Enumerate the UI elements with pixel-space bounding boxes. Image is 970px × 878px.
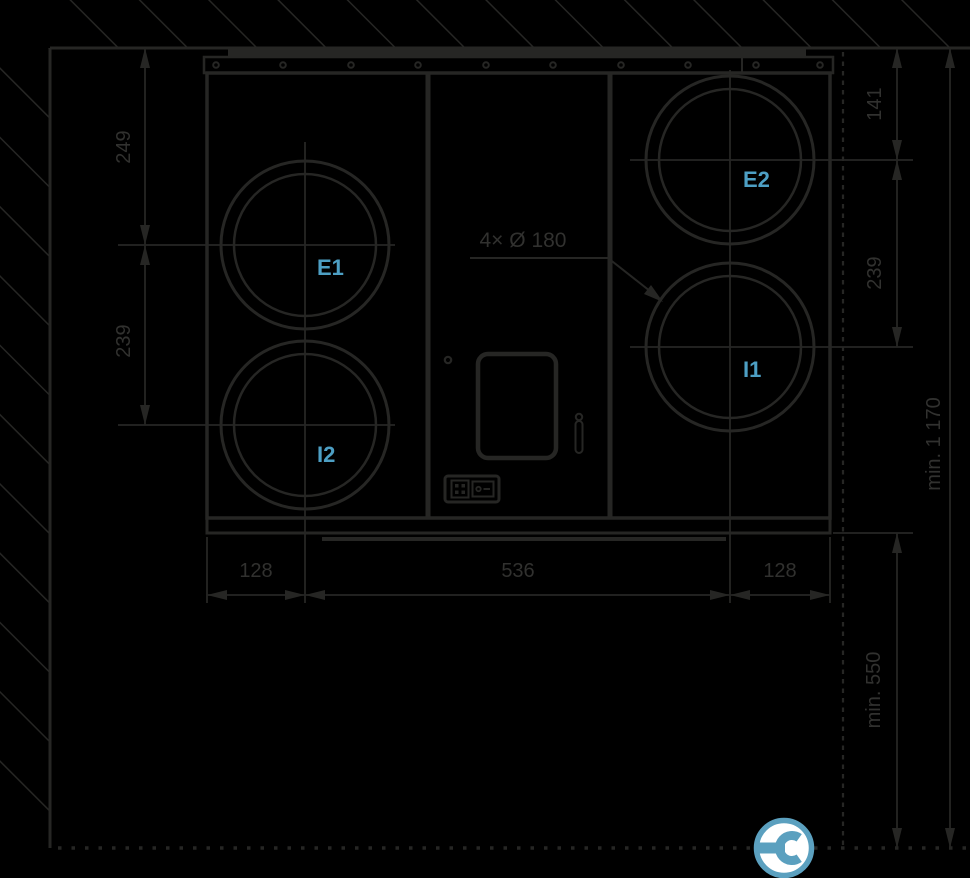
flange-screws [213, 62, 823, 68]
bottom-flange [207, 518, 830, 533]
flange-screw [753, 62, 759, 68]
flange-screw [550, 62, 556, 68]
installation-drawing: E1 I2 E2 I1 4× Ø 180 249 239 [0, 0, 970, 878]
dim-label-536: 536 [501, 560, 534, 582]
ventilation-unit [204, 49, 833, 539]
flange-screw [213, 62, 219, 68]
dim-arrow [710, 590, 730, 600]
flange-screw [817, 62, 823, 68]
dim-arrow [305, 590, 325, 600]
dim-arrow [892, 160, 902, 180]
terminal-pin [455, 484, 459, 488]
dim-label-249: 249 [113, 130, 135, 163]
connection-panel [445, 476, 499, 502]
terminal-pin [462, 484, 466, 488]
port-e1-label: E1 [317, 255, 344, 280]
dim-label-141: 141 [864, 87, 886, 120]
flange-screw [348, 62, 354, 68]
dim-arrow [140, 245, 150, 265]
control-door [478, 354, 556, 458]
dim-arrow [892, 828, 902, 848]
terminal-block [452, 481, 469, 498]
dim-arrow [892, 48, 902, 68]
dim-arrow [892, 327, 902, 347]
ports: E1 I2 E2 I1 [118, 70, 913, 603]
dim-label-128-right: 128 [763, 560, 796, 582]
dim-label-min550: min. 550 [863, 652, 885, 729]
dim-label-239-right: 239 [864, 256, 886, 289]
dim-arrow [892, 140, 902, 160]
door-handle-slot [576, 421, 583, 453]
flange-screw [483, 62, 489, 68]
dim-label-128-left: 128 [239, 560, 272, 582]
dim-arrow [140, 225, 150, 245]
ceiling-hatch [50, 0, 970, 48]
dim-arrow [892, 533, 902, 553]
dim-label-min1170: min. 1 170 [923, 397, 945, 490]
flange-screw [685, 62, 691, 68]
door-handle-pin [576, 414, 582, 420]
duct-size-callout: 4× Ø 180 [470, 229, 663, 302]
dim-arrow [945, 48, 955, 68]
dimension-left-column: 249 239 [113, 48, 150, 425]
dim-arrow [810, 590, 830, 600]
flange-screw [415, 62, 421, 68]
flange-screw [280, 62, 286, 68]
top-flange [204, 57, 833, 73]
door-section [445, 354, 583, 502]
port-e2-label: E2 [743, 167, 770, 192]
unit-body [207, 73, 830, 518]
switch-dot [476, 487, 480, 491]
dim-arrow [945, 828, 955, 848]
flange-screw [618, 62, 624, 68]
duct-size-text: 4× Ø 180 [480, 229, 567, 252]
wall-hatch [0, 48, 50, 820]
dim-arrow [285, 590, 305, 600]
dim-arrow [140, 48, 150, 68]
terminal-pin [455, 491, 459, 495]
dim-arrow [730, 590, 750, 600]
terminal-pin [462, 491, 466, 495]
dim-arrow [207, 590, 227, 600]
door-screw [445, 357, 451, 363]
dim-arrow [140, 405, 150, 425]
port-i1-label: I1 [743, 357, 761, 382]
port-i2-label: I2 [317, 442, 335, 467]
dimension-right-column: 141 239 min. 550 min. 1 170 [833, 48, 955, 848]
dimension-bottom-row: 128 536 128 [207, 537, 830, 603]
service-wrench-icon [757, 821, 812, 876]
dim-label-239-left: 239 [113, 324, 135, 357]
